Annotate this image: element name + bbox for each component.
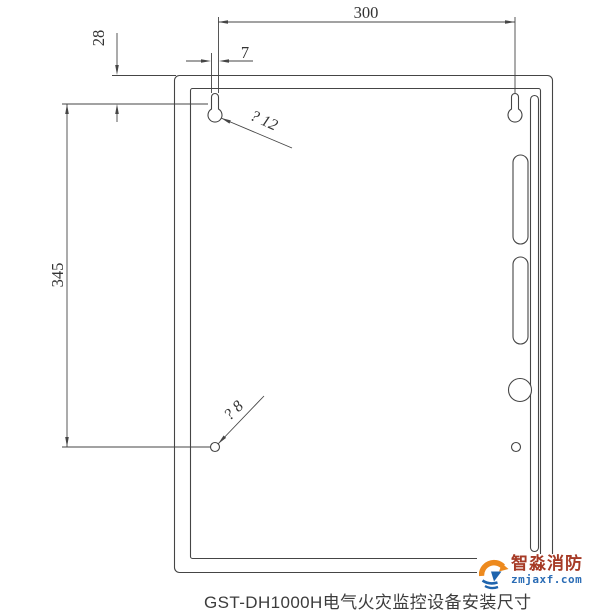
arrow-leader-12 xyxy=(221,118,231,124)
arrow-300-left xyxy=(218,20,228,24)
large-hole xyxy=(509,379,532,402)
zhimiao-swoosh-icon xyxy=(479,559,509,591)
installation-dimension-drawing: 300 28 345 7 ? 12 ? 8 xyxy=(0,0,608,616)
arrow-leader-8 xyxy=(218,436,226,445)
keyhole-right xyxy=(508,94,522,123)
arrow-28-top xyxy=(115,65,119,75)
small-hole-right xyxy=(512,443,521,452)
keyhole-left xyxy=(208,94,222,123)
arrow-345-top xyxy=(65,104,69,114)
dim-label-345: 345 xyxy=(48,263,67,288)
panel-outer-outline xyxy=(175,76,553,573)
dim-label-300: 300 xyxy=(354,3,379,22)
arrow-300-right xyxy=(505,20,515,24)
wiring-slot-bottom xyxy=(513,257,528,344)
wiring-slot-top xyxy=(513,155,528,244)
arrow-28-bottom xyxy=(115,104,119,114)
watermark-brand-name: 智淼消防 xyxy=(511,555,583,572)
arrow-7-right xyxy=(219,59,229,62)
watermark-logo: 智淼消防 zmjaxf.com xyxy=(477,554,585,592)
arrow-345-bottom xyxy=(65,437,69,447)
leader-label-dia8: ? 8 xyxy=(221,398,247,424)
watermark-text-block: 智淼消防 zmjaxf.com xyxy=(511,555,583,585)
screenshot-root: 300 28 345 7 ? 12 ? 8 GST-DH1000H电气火灾监控设… xyxy=(0,0,608,616)
leader-label-dia12: ? 12 xyxy=(248,107,280,134)
panel-inner-outline xyxy=(191,89,541,559)
watermark-website: zmjaxf.com xyxy=(511,574,583,585)
arrow-7-left xyxy=(201,59,211,62)
dim-label-28: 28 xyxy=(89,30,108,47)
dim-label-7: 7 xyxy=(241,43,249,62)
right-flange-strip xyxy=(531,96,539,552)
